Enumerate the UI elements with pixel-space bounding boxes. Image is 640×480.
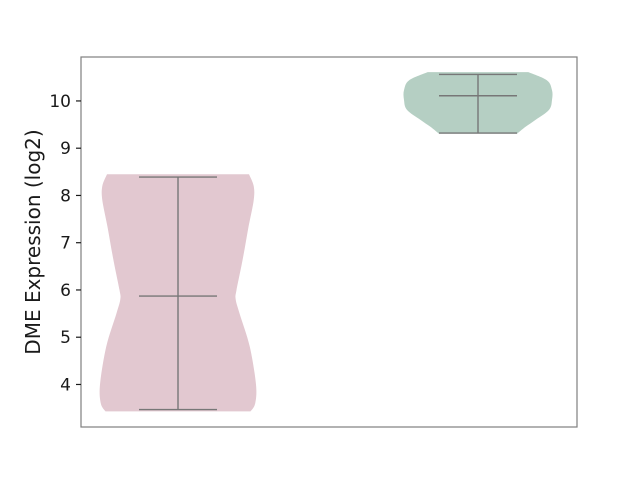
y-tick-label: 9	[60, 139, 71, 159]
y-tick-label: 10	[49, 92, 71, 112]
violin-chart: 45678910 DME Expression (log2)	[0, 0, 640, 480]
y-tick-label: 8	[60, 186, 71, 206]
y-tick-label: 6	[60, 281, 71, 301]
violins-layer	[100, 72, 553, 411]
y-axis-label: DME Expression (log2)	[21, 129, 45, 354]
y-tick-label: 4	[60, 375, 71, 395]
y-axis: 45678910	[49, 92, 81, 396]
y-tick-label: 5	[60, 328, 71, 348]
figure: 45678910 DME Expression (log2)	[0, 0, 640, 480]
y-tick-label: 7	[60, 234, 71, 254]
